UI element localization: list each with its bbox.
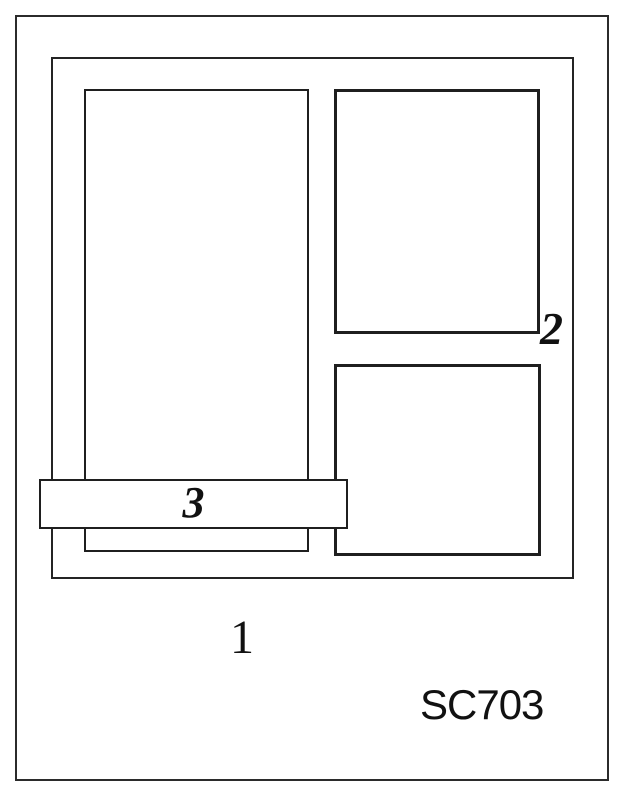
zone-label-1: 1 — [217, 614, 267, 662]
zone-label-2: 2 — [540, 306, 563, 352]
sketch-code: SC703 — [420, 684, 542, 726]
photo-block-top-right — [334, 89, 540, 334]
sketch-canvas: 3 1 2 SC703 — [0, 0, 626, 800]
photo-block-bottom-right — [334, 364, 541, 556]
zone-label-3: 3 — [183, 481, 205, 525]
banner-strip: 3 — [39, 479, 348, 529]
